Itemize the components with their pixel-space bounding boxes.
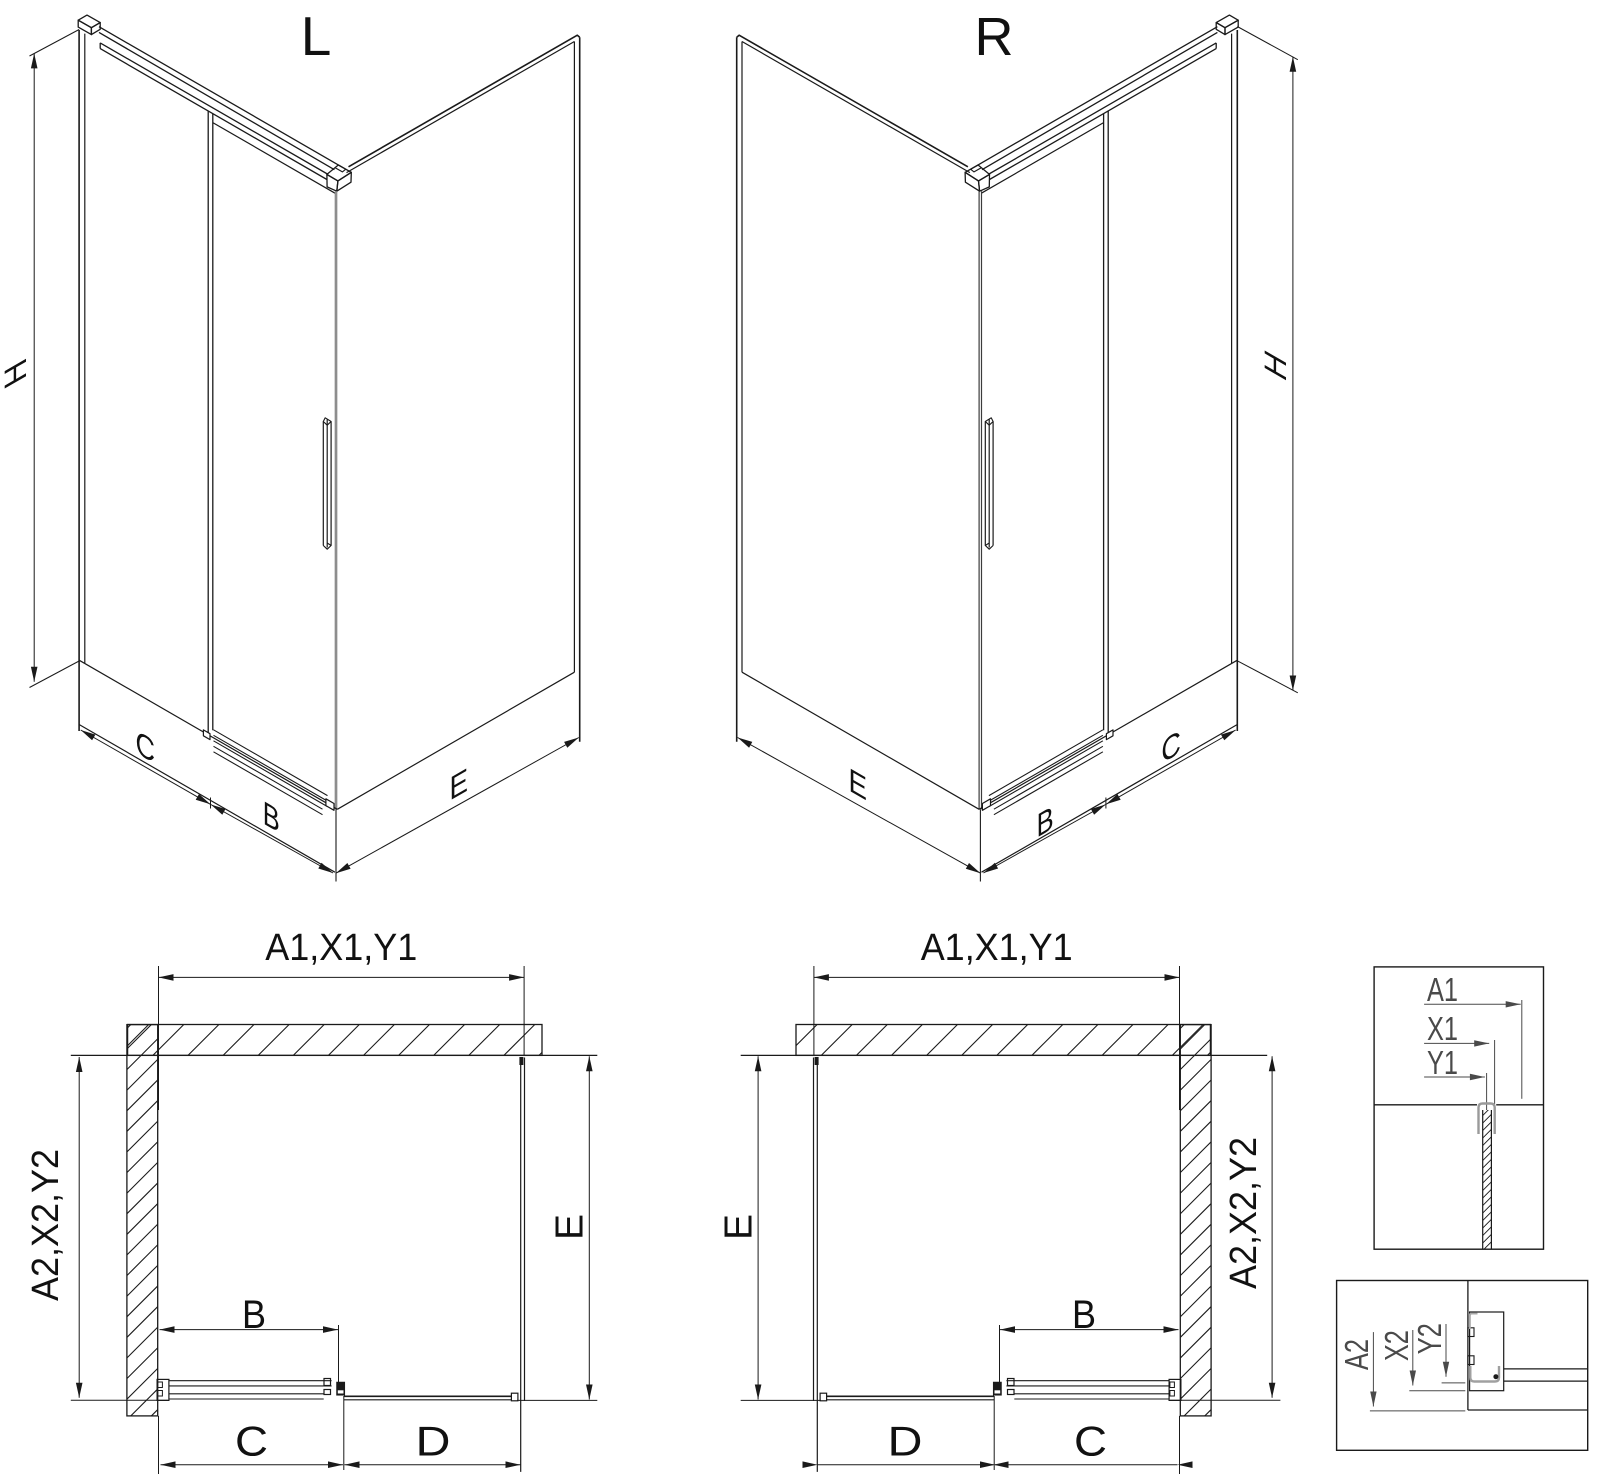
svg-text:Y2: Y2 (1411, 1323, 1448, 1354)
svg-text:A1,X1,Y1: A1,X1,Y1 (921, 927, 1073, 969)
svg-text:D: D (888, 1418, 923, 1465)
svg-text:C: C (235, 1418, 268, 1465)
svg-text:C: C (1074, 1418, 1107, 1465)
svg-text:A2,X2,Y2: A2,X2,Y2 (1223, 1137, 1265, 1289)
svg-text:X1: X1 (1427, 1010, 1458, 1047)
svg-text:L: L (301, 5, 332, 67)
svg-text:D: D (416, 1418, 451, 1465)
svg-text:R: R (975, 7, 1014, 67)
svg-text:A2,X2,Y2: A2,X2,Y2 (25, 1149, 67, 1301)
svg-text:A1: A1 (1427, 971, 1458, 1008)
svg-text:X2: X2 (1378, 1330, 1415, 1361)
svg-text:E: E (718, 1214, 761, 1240)
svg-text:A2: A2 (1338, 1339, 1375, 1370)
svg-text:B: B (242, 1293, 266, 1337)
svg-text:A1,X1,Y1: A1,X1,Y1 (265, 927, 417, 969)
svg-text:Y1: Y1 (1427, 1044, 1458, 1081)
svg-text:B: B (1072, 1293, 1096, 1337)
svg-text:E: E (548, 1214, 591, 1240)
